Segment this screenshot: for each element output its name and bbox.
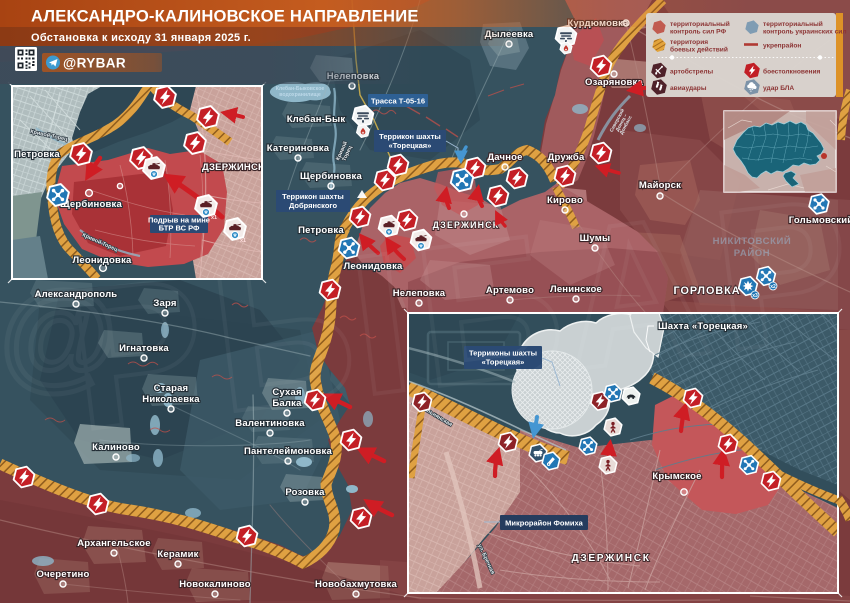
svg-text:Новокалиново: Новокалиново xyxy=(179,579,251,590)
svg-text:контроль сил РФ: контроль сил РФ xyxy=(670,29,726,36)
svg-text:Очеретино: Очеретино xyxy=(37,569,90,580)
svg-text:укрепрайон: укрепрайон xyxy=(763,42,801,50)
svg-text:Микрорайон Фомиха: Микрорайон Фомиха xyxy=(505,519,584,528)
svg-text:Добрянского: Добрянского xyxy=(289,201,337,210)
svg-text:территориальный: территориальный xyxy=(670,20,730,28)
svg-text:x1: x1 xyxy=(211,215,217,221)
svg-text:ДЗЕРЖИНСК: ДЗЕРЖИНСК xyxy=(202,162,264,173)
svg-text:Розовка: Розовка xyxy=(285,487,325,498)
svg-text:артобстрелы: артобстрелы xyxy=(670,68,714,76)
svg-text:ДЗЕРЖИНСК: ДЗЕРЖИНСК xyxy=(571,553,650,564)
svg-text:@RYBAR: @RYBAR xyxy=(63,56,126,71)
svg-text:Трасса Т-05-16: Трасса Т-05-16 xyxy=(371,97,425,106)
svg-text:Клебан-Бык: Клебан-Бык xyxy=(287,114,346,125)
svg-text:Катериновка: Катериновка xyxy=(267,143,330,154)
svg-text:Дружба: Дружба xyxy=(548,152,585,163)
svg-text:удар БЛА: удар БЛА xyxy=(763,85,794,92)
svg-text:Крымское: Крымское xyxy=(652,471,701,482)
svg-text:Террикон шахты: Террикон шахты xyxy=(282,192,344,201)
svg-text:водохранилище: водохранилище xyxy=(279,92,321,98)
svg-text:территориальный: территориальный xyxy=(763,20,823,28)
svg-text:территория: территория xyxy=(670,39,708,46)
svg-text:боевых действий: боевых действий xyxy=(670,46,728,54)
svg-text:Озаряновка: Озаряновка xyxy=(585,77,643,88)
svg-text:Обстановка к исходу 31 января: Обстановка к исходу 31 января 2025 г. xyxy=(31,32,251,44)
svg-text:Дачное: Дачное xyxy=(487,152,522,163)
svg-text:Петровка: Петровка xyxy=(14,149,60,160)
svg-text:«Торецкая»: «Торецкая» xyxy=(389,141,432,150)
svg-text:Щербиновка: Щербиновка xyxy=(300,171,362,182)
svg-text:Щербиновка: Щербиновка xyxy=(60,199,122,210)
svg-text:Террикон шахты: Террикон шахты xyxy=(379,132,441,141)
svg-text:Клебан-Быковское: Клебан-Быковское xyxy=(276,85,325,92)
svg-text:Архангельское: Архангельское xyxy=(77,538,151,549)
svg-text:Новобахмутовка: Новобахмутовка xyxy=(315,579,397,590)
svg-text:контроль украинских сил: контроль украинских сил xyxy=(763,29,847,36)
svg-text:боестолкновения: боестолкновения xyxy=(763,68,821,76)
svg-text:АЛЕКСАНДРО-КАЛИНОВСКОЕ НАПРАВЛ: АЛЕКСАНДРО-КАЛИНОВСКОЕ НАПРАВЛЕНИЕ xyxy=(31,7,419,26)
svg-text:авиаудары: авиаудары xyxy=(670,85,707,92)
svg-text:БТР ВС РФ: БТР ВС РФ xyxy=(159,224,200,233)
svg-text:Керамик: Керамик xyxy=(157,549,198,560)
